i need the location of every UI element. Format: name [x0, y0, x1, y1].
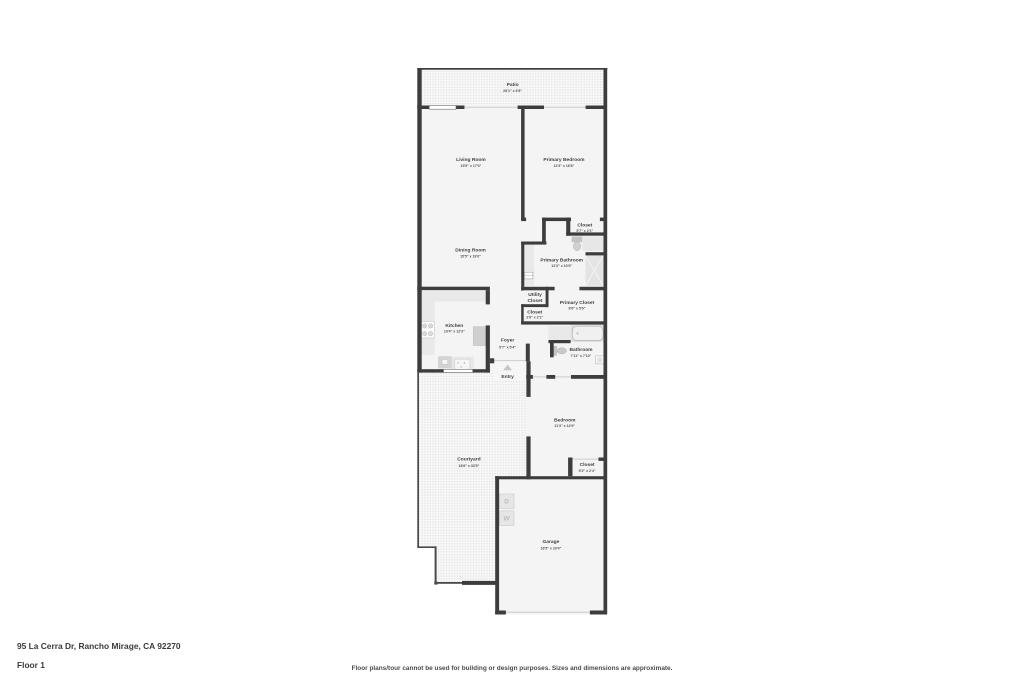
- svg-text:Primary Closet: Primary Closet: [560, 300, 595, 306]
- svg-text:Dining Room: Dining Room: [455, 248, 486, 254]
- svg-text:Kitchen: Kitchen: [445, 323, 463, 329]
- svg-text:15'5" x 17'0": 15'5" x 17'0": [460, 164, 481, 168]
- svg-text:12'3" x 10'0": 12'3" x 10'0": [551, 264, 572, 268]
- svg-text:Garage: Garage: [542, 539, 559, 545]
- svg-text:9'2" x 2'4": 9'2" x 2'4": [579, 469, 596, 473]
- svg-text:Closet: Closet: [527, 309, 542, 315]
- svg-text:Living Room: Living Room: [456, 157, 486, 163]
- svg-text:Primary Bathroom: Primary Bathroom: [540, 258, 583, 264]
- svg-text:Closet: Closet: [580, 462, 595, 468]
- svg-text:D: D: [504, 499, 509, 506]
- svg-text:11'3" x 14'9": 11'3" x 14'9": [554, 424, 575, 428]
- svg-text:16'5" x 20'4": 16'5" x 20'4": [540, 547, 561, 551]
- svg-text:5'7" x 2'1": 5'7" x 2'1": [576, 229, 593, 233]
- svg-text:8'6" x 5'6": 8'6" x 5'6": [569, 307, 586, 311]
- svg-text:Foyer: Foyer: [501, 338, 514, 344]
- svg-text:Utility: Utility: [528, 292, 542, 298]
- svg-text:5'7" x 5'4": 5'7" x 5'4": [499, 345, 516, 349]
- svg-text:W: W: [504, 515, 511, 522]
- svg-text:Patio: Patio: [507, 82, 519, 88]
- svg-text:Closet: Closet: [577, 222, 592, 228]
- svg-text:2'6" x 2'1": 2'6" x 2'1": [526, 316, 543, 320]
- svg-text:15'5" x 19'0": 15'5" x 19'0": [460, 255, 481, 259]
- svg-text:Closet: Closet: [528, 298, 543, 304]
- svg-text:16'6" x 33'5": 16'6" x 33'5": [458, 464, 479, 468]
- svg-text:Courtyard: Courtyard: [457, 457, 480, 463]
- svg-text:10'4" x 12'3": 10'4" x 12'3": [444, 330, 465, 334]
- svg-text:Entry: Entry: [501, 374, 514, 380]
- svg-text:12'3" x 16'8": 12'3" x 16'8": [553, 164, 574, 168]
- svg-text:7'11" x 7'10": 7'11" x 7'10": [571, 354, 592, 358]
- svg-text:28'1" x 5'8": 28'1" x 5'8": [503, 89, 522, 93]
- svg-text:Bedroom: Bedroom: [554, 418, 576, 424]
- svg-text:Primary Bedroom: Primary Bedroom: [543, 157, 585, 163]
- svg-text:Bathroom: Bathroom: [569, 347, 593, 353]
